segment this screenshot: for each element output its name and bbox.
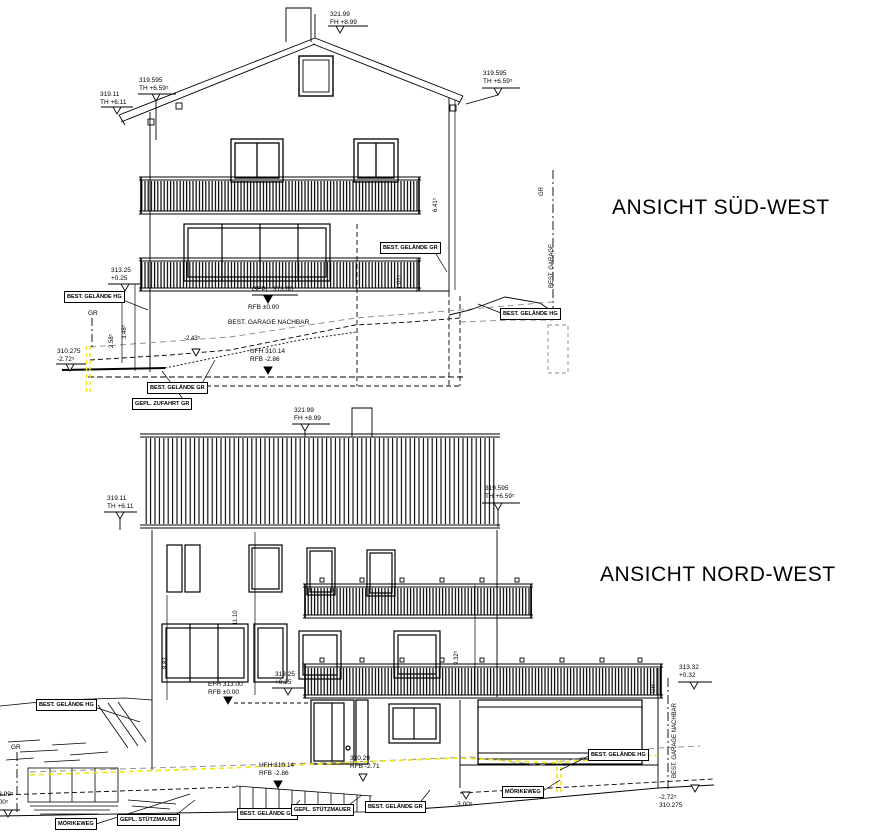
nw-level-m300: -3.00⁵ (455, 801, 473, 809)
nw-level-272: -2.72⁵ 310.275 (659, 794, 683, 809)
nw-level-31325: 313.25 +0.25 (275, 671, 295, 686)
sw-best-gelaende-hg-right: BEST. GELÄNDE HG (500, 308, 561, 320)
sw-ridge-level: 321.99 FH +8.99 (330, 11, 357, 26)
sw-rfb-zero: RFB ±0.00 (248, 304, 279, 312)
sw-best-gelaende-gr-bottom: BEST. GELÄNDE GR (147, 382, 208, 394)
nw-gepl-stutzmauer-mid: GEPL. STÜTZMAUER (291, 804, 354, 816)
elevation-line-art (0, 0, 882, 837)
sw-upper-windows (231, 139, 398, 182)
nw-dim-882: 8.82 (163, 657, 170, 669)
sw-eave-left-outer: 319.11 TH +6.11 (100, 91, 126, 106)
sw-best-gelaende-gr-mid: BEST. GELÄNDE GR (380, 242, 441, 254)
sw-ufh-level: UFH 310.14 RFB -2.86 (250, 348, 285, 363)
nw-dim-9325: 9.32⁵ (454, 651, 461, 665)
nw-morikeweg-left: MÖRIKEWEG (55, 818, 97, 830)
sw-gepl-zufahrt-gr: GEPL. ZUFAHRT GR (132, 398, 192, 410)
sw-eave-left-inner: 319.595 TH +6.59⁵ (139, 77, 169, 92)
nw-level-31029: 310.29 RFB -2.71 (350, 755, 380, 770)
sw-dim-243: -2.43⁵ (184, 336, 200, 344)
nw-balcony-lower (303, 658, 663, 698)
title-nord-west: ANSICHT NORD-WEST (600, 563, 836, 587)
sw-best-garage-nachbar: BEST. GARAGE NACHBAR (228, 319, 309, 327)
sw-dim-258: 2.58⁵ (109, 334, 116, 348)
nw-level-30899: 308.99⁵ -4.00⁵ (0, 791, 14, 806)
sw-dim-348: 3.48⁵ (122, 325, 129, 339)
sw-level-310275: 310.275 -2.72⁵ (57, 348, 81, 363)
sw-best-gelaende-hg-left: BEST. GELÄNDE HG (64, 291, 125, 303)
nw-ridge-level: 321.99 FH +8.99 (294, 407, 321, 422)
sw-level-31325: 313.25 +0.25 (111, 267, 131, 282)
nw-ground-window (389, 704, 440, 743)
nw-chimney (352, 408, 372, 437)
nw-efh-level: EFH 313.00 RFB ±0.00 (208, 681, 243, 696)
nw-balcony-upper (303, 578, 533, 618)
nw-gepl-stutzmauer-left: GEPL. STÜTZMAUER (117, 814, 180, 826)
sw-roof (119, 14, 463, 125)
sw-eave-right: 319.595 TH +6.59⁵ (483, 70, 513, 85)
sw-best-garage-vertical: BEST. GARAGE (549, 244, 556, 288)
sw-dim-101: 1.01⁵ (397, 275, 404, 289)
sw-balcony-upper (139, 177, 421, 214)
nw-retaining-wall (0, 698, 176, 814)
nw-gr-left: GR (11, 744, 21, 752)
sw-chimney (286, 8, 311, 42)
nw-level-31332: 313.32 +0.32 (679, 664, 699, 679)
sw-dim-641: 6.41⁵ (433, 198, 440, 212)
architectural-elevation-sheet: { "titles": { "sued_west": "ANSICHT SÜD-… (0, 0, 882, 837)
nw-morikeweg-right: MÖRIKEWEG (502, 786, 544, 798)
nw-walls (152, 530, 658, 788)
nw-best-gelaende-hg-left: BEST. GELÄNDE HG (36, 699, 97, 711)
sw-elevation (56, 8, 568, 403)
nw-best-gelaende-hg-right: BEST. GELÄNDE HG (588, 749, 649, 761)
nw-dim-1110: 11.10 (233, 610, 240, 625)
nw-ufh-level: UFH 310.14 RFB -2.86 (259, 762, 294, 777)
title-sued-west: ANSICHT SÜD-WEST (612, 196, 830, 220)
nw-gr-right: GR (651, 684, 658, 693)
nw-best-garage-nachbar-vertical: BEST. GARAGE NACHBAR (672, 703, 679, 778)
sw-gr-left: GR (88, 310, 98, 318)
sw-gepl-level: GEPL. 313.00 (252, 286, 293, 294)
sw-attic-window (299, 56, 333, 96)
nw-best-gelaende-gr-1: BEST. GELÄNDE GR (237, 808, 298, 820)
sw-gr-right: GR (539, 187, 546, 196)
sw-dim-lines (122, 100, 455, 371)
nw-eave-right: 319.595 TH +6.59⁵ (485, 485, 515, 500)
nw-best-gelaende-gr-2: BEST. GELÄNDE GR (365, 801, 426, 813)
nw-eave-left: 319.11 TH +6.11 (107, 495, 133, 510)
nw-roof (140, 434, 500, 528)
